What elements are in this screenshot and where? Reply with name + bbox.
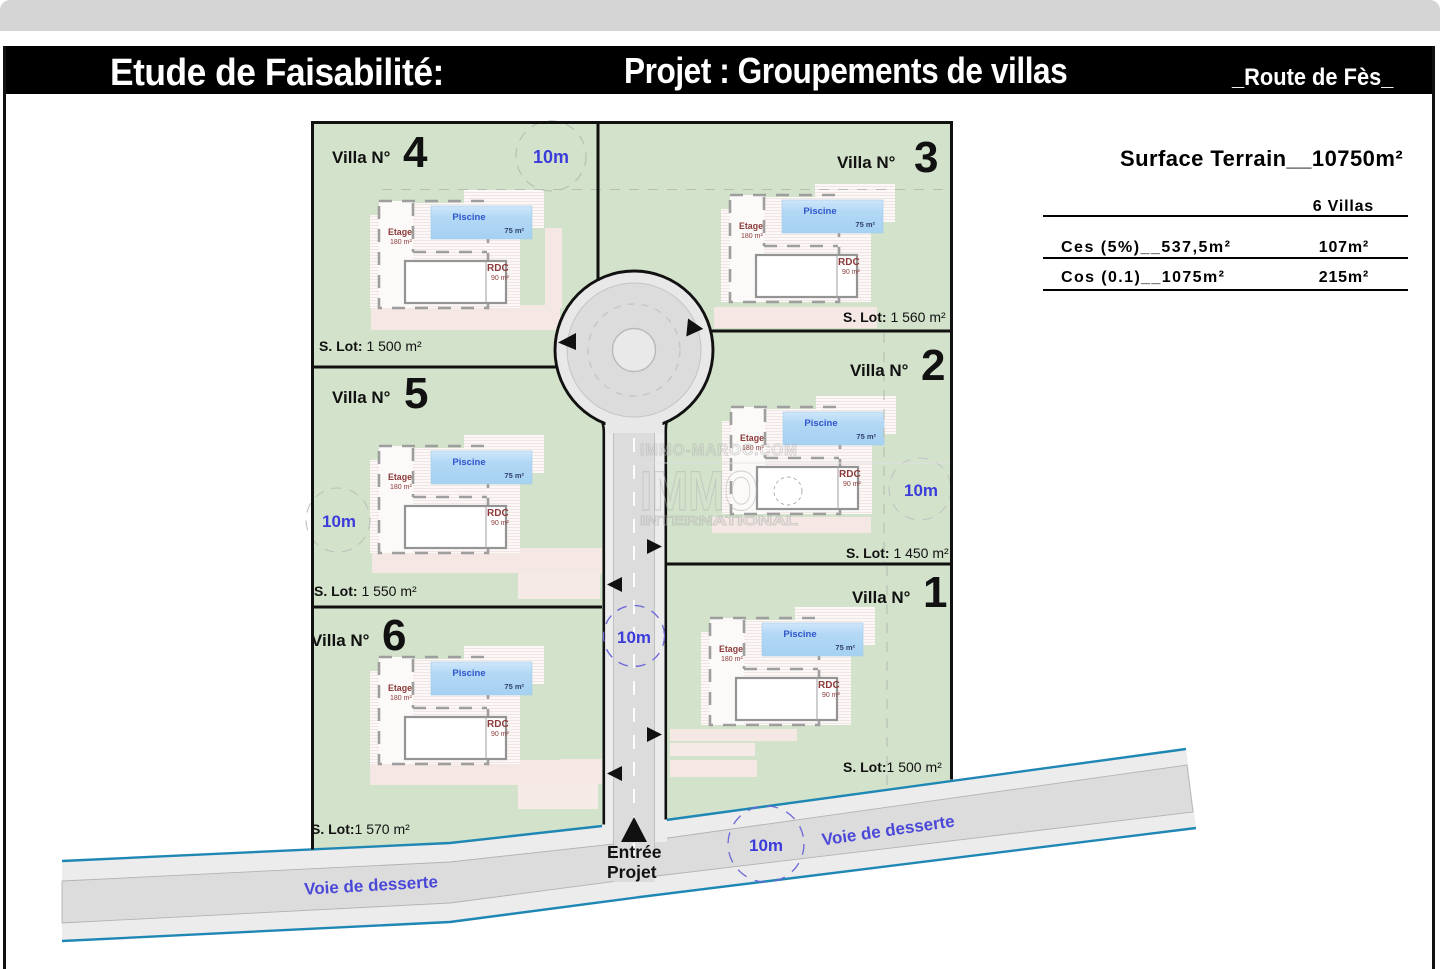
svg-text:IMMO-MAROC.COM: IMMO-MAROC.COM [640,442,798,459]
svg-text:S. Lot: 1 560 m²: S. Lot: 1 560 m² [843,309,946,325]
svg-text:S. Lot:1 500 m²: S. Lot:1 500 m² [843,759,942,775]
svg-text:Surface Terrain__10750m²: Surface Terrain__10750m² [1120,146,1403,171]
svg-text:2: 2 [921,341,945,390]
svg-text:215m²: 215m² [1319,269,1369,286]
svg-text:Villa N°: Villa N° [332,388,391,407]
svg-text:6 Villas: 6 Villas [1313,198,1374,215]
svg-text:10m: 10m [533,147,569,167]
svg-text:5: 5 [404,369,428,418]
svg-text:S. Lot: 1 500 m²: S. Lot: 1 500 m² [319,338,422,354]
svg-text:10m: 10m [904,481,938,500]
svg-text:Villa N°: Villa N° [311,631,370,650]
svg-text:1: 1 [923,568,947,617]
svg-text:10m: 10m [749,836,783,855]
svg-text:Entrée: Entrée [607,842,662,862]
svg-text:Cos (0.1)__1075m²: Cos (0.1)__1075m² [1061,269,1225,286]
svg-text:3: 3 [914,133,938,182]
svg-text:INTERNATIONAL: INTERNATIONAL [640,514,799,528]
svg-text:10m: 10m [617,628,651,647]
svg-text:Villa N°: Villa N° [837,153,896,172]
svg-text:S. Lot: 1 550 m²: S. Lot: 1 550 m² [314,583,417,599]
svg-text:6: 6 [382,611,406,660]
svg-text:10m: 10m [322,512,356,531]
svg-text:S. Lot:1 570 m²: S. Lot:1 570 m² [311,821,410,837]
svg-text:Villa N°: Villa N° [332,148,391,167]
svg-text:Projet: Projet [607,862,657,882]
svg-text:IMMO: IMMO [640,459,758,522]
svg-text:4: 4 [403,128,428,177]
svg-text:Ces (5%)__537,5m²: Ces (5%)__537,5m² [1061,239,1231,256]
svg-text:Villa N°: Villa N° [850,361,909,380]
svg-text:107m²: 107m² [1319,239,1369,256]
svg-text:Villa N°: Villa N° [852,588,911,607]
svg-text:S. Lot: 1 450 m²: S. Lot: 1 450 m² [846,545,949,561]
